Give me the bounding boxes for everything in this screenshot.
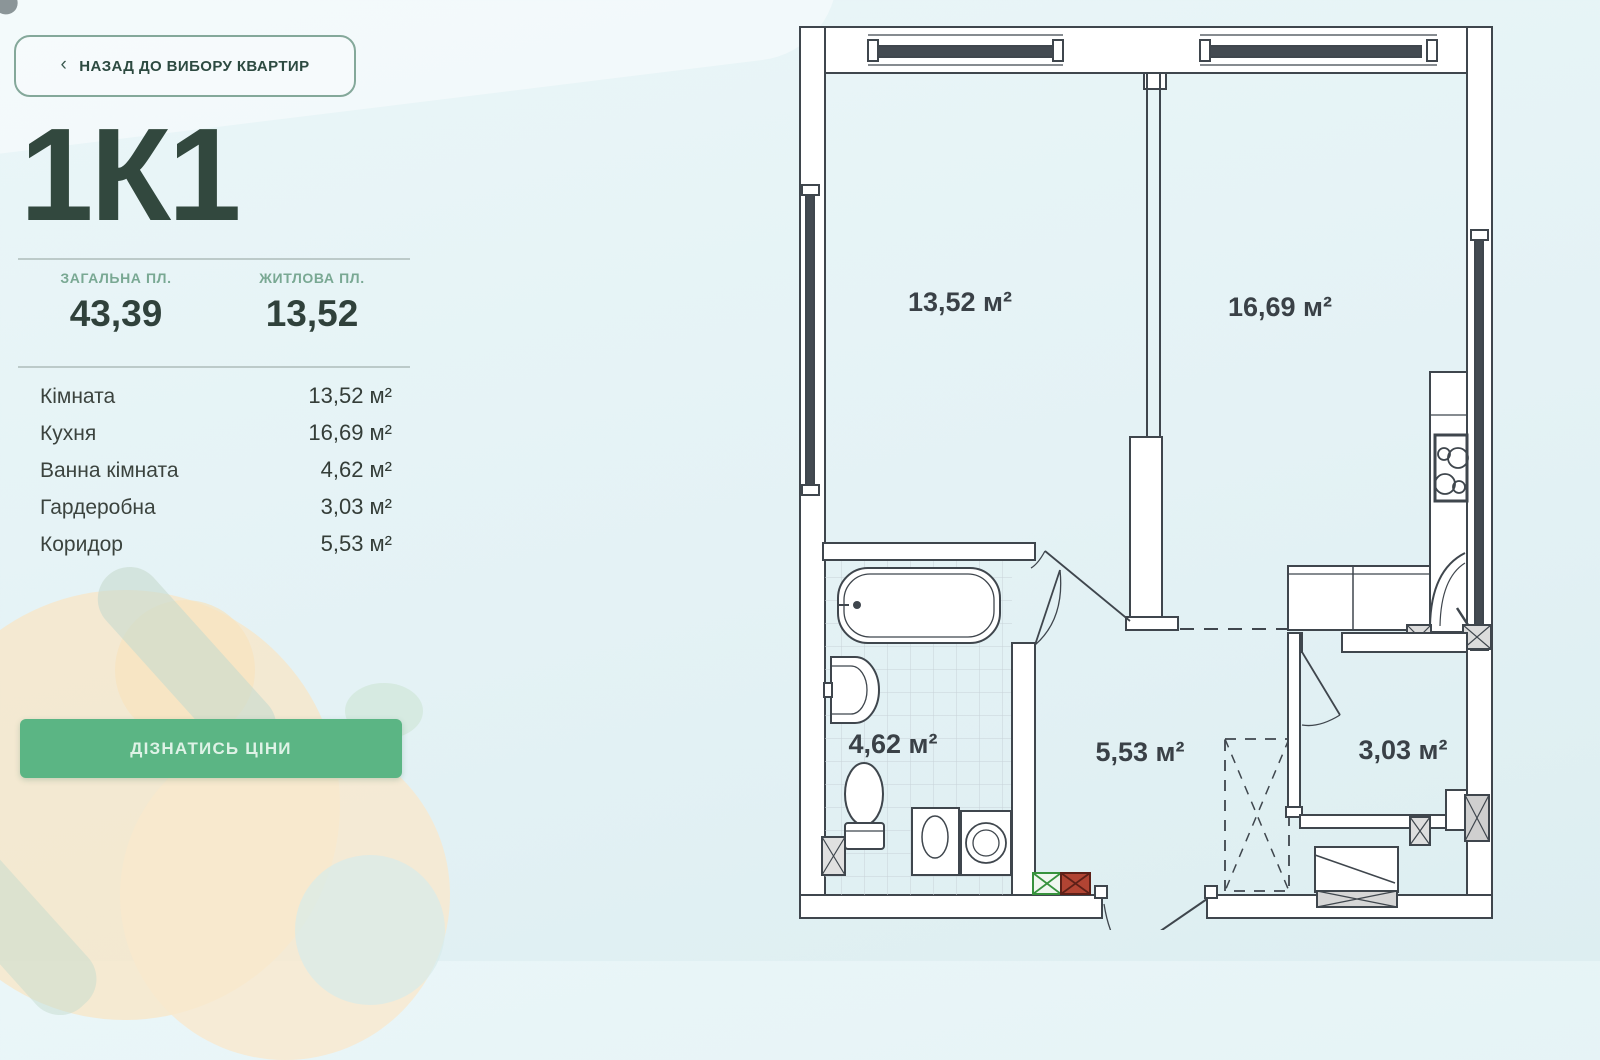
shaft-icon	[1317, 891, 1397, 907]
plan-label-living-room: 13,52 м²	[908, 287, 1012, 317]
shaft-icon	[1410, 817, 1430, 845]
list-item: Гардеробна 3,03 м²	[40, 494, 392, 531]
list-item: Кімната 13,52 м²	[40, 383, 392, 420]
room-area: 13,52 м²	[308, 383, 392, 409]
stove-icon	[1435, 435, 1468, 501]
furniture-box	[1315, 847, 1398, 892]
area-stats: ЗАГАЛЬНА ПЛ. 43,39 ЖИТЛОВА ПЛ. 13,52	[18, 270, 410, 335]
living-area-stat: ЖИТЛОВА ПЛ. 13,52	[214, 270, 410, 335]
room-area: 3,03 м²	[321, 494, 392, 520]
sink-icon	[824, 657, 879, 723]
cabinet-icon	[912, 808, 959, 875]
partition-wall	[1126, 73, 1178, 630]
back-button-label: НАЗАД ДО ВИБОРУ КВАРТИР	[79, 58, 309, 75]
door-icon	[1302, 652, 1340, 726]
apartment-page: ‹ НАЗАД ДО ВИБОРУ КВАРТИР 1К1 ЗАГАЛЬНА П…	[0, 0, 1600, 961]
room-area: 5,53 м²	[321, 531, 392, 557]
shaft-icon	[822, 837, 845, 875]
room-name: Ванна кімната	[40, 459, 179, 483]
find-out-prices-button[interactable]: ДІЗНАТИСЬ ЦІНИ	[20, 719, 402, 778]
living-area-value: 13,52	[214, 293, 410, 335]
back-to-apartments-button[interactable]: ‹ НАЗАД ДО ВИБОРУ КВАРТИР	[14, 35, 356, 97]
plan-label-corridor: 5,53 м²	[1095, 737, 1184, 767]
chevron-left-icon: ‹	[61, 54, 68, 76]
door-jamb	[1205, 886, 1217, 898]
washing-machine-icon	[961, 811, 1011, 875]
plan-label-bathroom: 4,62 м²	[848, 729, 937, 759]
total-area-label: ЗАГАЛЬНА ПЛ.	[18, 270, 214, 286]
list-item: Коридор 5,53 м²	[40, 531, 392, 568]
vent-shaft-red-icon	[1061, 873, 1090, 894]
kitchen-lower-counter	[1288, 566, 1430, 630]
room-area: 16,69 м²	[308, 420, 392, 446]
floor-plan-drawing: 13,52 м² 16,69 м² 4,62 м² 5,53 м² 3,03 м…	[795, 25, 1495, 930]
room-name: Коридор	[40, 533, 123, 557]
wardrobe-dashed-box	[1225, 739, 1289, 891]
apartment-title: 1К1	[20, 106, 238, 245]
plan-label-kitchen: 16,69 м²	[1228, 292, 1332, 322]
room-list: Кімната 13,52 м² Кухня 16,69 м² Ванна кі…	[40, 383, 392, 568]
door-icon	[1035, 570, 1061, 645]
wardrobe-room-walls	[1286, 633, 1467, 828]
floor-plan: 13,52 м² 16,69 м² 4,62 м² 5,53 м² 3,03 м…	[795, 25, 1495, 930]
shaft-icon	[1446, 790, 1489, 841]
vent-shaft-green-icon	[1033, 873, 1061, 894]
divider	[18, 366, 410, 368]
living-area-label: ЖИТЛОВА ПЛ.	[214, 270, 410, 286]
total-area-stat: ЗАГАЛЬНА ПЛ. 43,39	[18, 270, 214, 335]
list-item: Кухня 16,69 м²	[40, 420, 392, 457]
list-item: Ванна кімната 4,62 м²	[40, 457, 392, 494]
room-name: Кімната	[40, 385, 115, 409]
divider	[18, 258, 410, 260]
bathtub-icon	[838, 568, 1000, 643]
entrance-door-icon	[1104, 899, 1207, 930]
plan-label-wardrobe: 3,03 м²	[1358, 735, 1447, 765]
toilet-icon	[845, 763, 884, 849]
room-name: Кухня	[40, 422, 96, 446]
room-name: Гардеробна	[40, 496, 156, 520]
room-area: 4,62 м²	[321, 457, 392, 483]
door-jamb	[1095, 886, 1107, 898]
total-area-value: 43,39	[18, 293, 214, 335]
